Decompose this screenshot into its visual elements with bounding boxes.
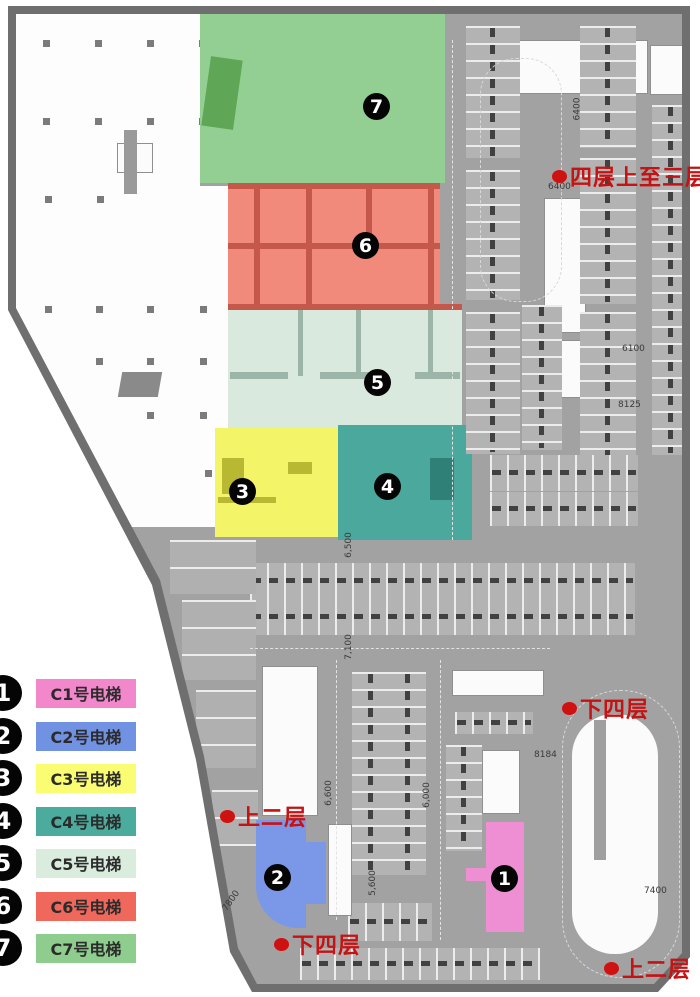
ramp-island: [572, 714, 658, 954]
column: [95, 40, 102, 47]
legend-number-marker: 4: [0, 803, 22, 839]
zone-c1-elevator: [466, 868, 488, 881]
parking-stalls: [455, 712, 533, 734]
zone-c5-wall: [230, 372, 288, 379]
column: [147, 306, 154, 313]
parking-stalls: [170, 540, 256, 594]
parking-stalls: [250, 599, 635, 635]
annotation-marker-icon: [220, 810, 235, 823]
annotation-text: 下四层: [580, 692, 649, 724]
legend-item: 5 C5号电梯: [0, 845, 136, 881]
zone-c6-wall: [428, 189, 434, 310]
drive-lane-marking: [452, 40, 454, 540]
dimension-label: 7,100: [344, 634, 354, 660]
zone-c5-wall: [428, 310, 433, 376]
annotation-marker-icon: [274, 938, 289, 951]
parking-stalls: [466, 312, 520, 454]
stair-block: [118, 372, 162, 397]
drive-lane-marking: [480, 58, 562, 302]
dimension-label: 8184: [534, 750, 557, 760]
annotation-text: 下四层: [292, 928, 361, 960]
legend-number-marker: 1: [0, 675, 22, 711]
column: [43, 118, 50, 125]
column: [200, 358, 207, 365]
annotation-marker-icon: [604, 962, 619, 975]
legend-number-marker: 3: [0, 760, 22, 796]
zone-number-marker: 6: [352, 232, 379, 259]
column: [97, 196, 104, 203]
equipment-room: [452, 670, 544, 696]
zone-c5-wall: [298, 310, 303, 376]
column: [96, 306, 103, 313]
legend-item: 4 C4号电梯: [0, 803, 136, 839]
annotation-text: 上二层: [238, 800, 307, 832]
zone-number-marker: 4: [374, 473, 401, 500]
parking-stalls: [446, 745, 482, 851]
legend-elevator-label: C6号电梯: [36, 892, 136, 921]
legend-number-marker: 5: [0, 845, 22, 881]
parking-stalls: [580, 26, 636, 148]
floor-change-annotation: 下四层: [274, 928, 361, 960]
legend-elevator-label: C5号电梯: [36, 849, 136, 878]
drive-lane-marking: [440, 660, 442, 940]
dimension-label: 8125: [618, 400, 641, 410]
legend-elevator-label: C3号电梯: [36, 764, 136, 793]
annotation-text: 四层上至三层: [570, 160, 700, 192]
legend-item: 7 C7号电梯: [0, 930, 136, 966]
parking-stalls: [490, 492, 638, 526]
zone-number-marker: 1: [491, 865, 518, 892]
parking-stalls: [196, 690, 256, 768]
dimension-label: 6100: [622, 344, 645, 354]
legend-number-marker: 6: [0, 888, 22, 924]
zone-c3-core: [288, 462, 312, 474]
zone-c6-wall: [254, 189, 260, 304]
dimension-label: 6,500: [344, 532, 354, 558]
dimension-label: 6400: [572, 98, 582, 121]
legend-item: 3 C3号电梯: [0, 760, 136, 796]
legend-item: 6 C6号电梯: [0, 888, 136, 924]
floor-change-annotation: 四层上至三层: [552, 160, 700, 192]
zone-number-marker: 7: [363, 93, 390, 120]
dimension-label: 6,600: [324, 780, 334, 806]
floor-change-annotation: 上二层: [604, 952, 691, 984]
column: [147, 412, 154, 419]
dimension-label: 5,600: [368, 870, 378, 896]
legend-elevator-label: C7号电梯: [36, 934, 136, 963]
zone-c4-core: [430, 458, 454, 500]
zone-number-marker: 5: [364, 369, 391, 396]
legend-elevator-label: C1号电梯: [36, 679, 136, 708]
parking-stalls: [522, 305, 562, 450]
ramp-divider-wall: [594, 720, 606, 860]
column: [43, 40, 50, 47]
parking-stalls: [490, 455, 638, 491]
column: [96, 358, 103, 365]
legend-elevator-label: C4号电梯: [36, 807, 136, 836]
zone-c2-elevator: [300, 842, 326, 904]
legend-number-marker: 7: [0, 930, 22, 966]
lobby-room: [482, 750, 520, 814]
zone-number-marker: 2: [264, 864, 291, 891]
legend-item: 1 C1号电梯: [0, 675, 136, 711]
parking-stalls: [352, 672, 389, 875]
annotation-marker-icon: [562, 702, 577, 715]
dimension-label: 6,000: [422, 782, 432, 808]
column: [147, 40, 154, 47]
zone-c5-wall: [356, 310, 361, 376]
lobby-room: [328, 824, 352, 916]
column: [200, 306, 207, 313]
zone-number-marker: 3: [229, 478, 256, 505]
column: [45, 196, 52, 203]
annotation-text: 上二层: [622, 952, 691, 984]
parking-stalls: [250, 563, 635, 599]
legend-item: 2 C2号电梯: [0, 718, 136, 754]
column: [205, 470, 212, 477]
column: [95, 118, 102, 125]
floor-change-annotation: 上二层: [220, 800, 307, 832]
parking-stalls: [182, 600, 256, 680]
annotation-marker-icon: [552, 170, 567, 183]
column: [200, 412, 207, 419]
core-wall: [124, 130, 137, 194]
zone-c6-wall: [306, 189, 312, 304]
drive-lane-marking: [250, 648, 550, 650]
legend-elevator-label: C2号电梯: [36, 722, 136, 751]
legend-number-marker: 2: [0, 718, 22, 754]
drive-lane-marking: [336, 660, 338, 920]
parking-stalls: [580, 312, 636, 462]
parking-stalls: [389, 672, 426, 875]
floor-change-annotation: 下四层: [562, 692, 649, 724]
lobby-room: [262, 666, 318, 816]
dimension-label: 7400: [644, 886, 667, 896]
column: [45, 306, 52, 313]
zone-c5-elevator: [228, 310, 462, 432]
column: [147, 118, 154, 125]
column: [147, 358, 154, 365]
